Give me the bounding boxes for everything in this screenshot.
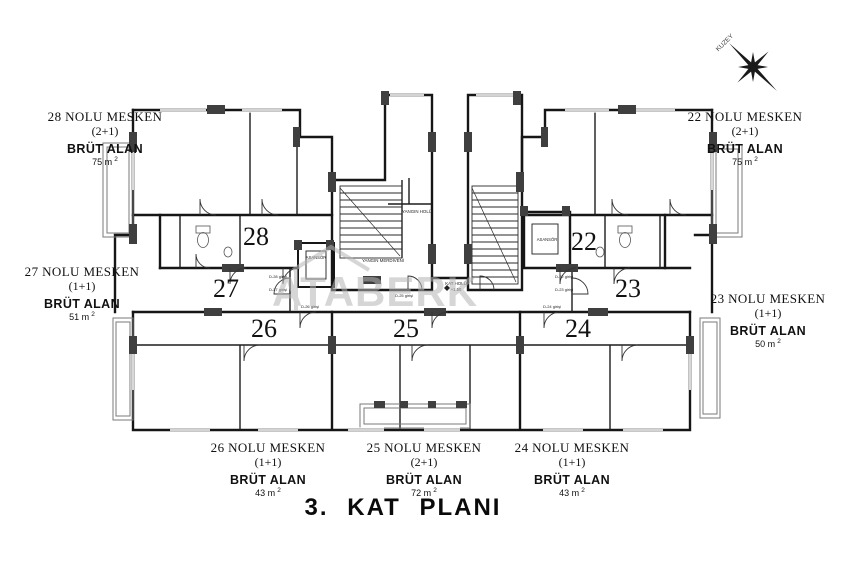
entry-label-24: D-24 girişi xyxy=(543,304,561,309)
windows xyxy=(130,92,714,432)
callout-unit-23: 23 NOLU MESKEN (1+1) BRÜT ALAN 50 m2 xyxy=(711,292,826,349)
plan-number-28: 28 xyxy=(243,222,269,251)
yangin-holu-label: YANGIN HOLÜ xyxy=(402,209,432,214)
unit-area-value: 75 m2 xyxy=(48,156,163,167)
yangin-merdiveni-label: YANGIN MERDİVENİ xyxy=(362,258,404,263)
unit-type: (1+1) xyxy=(25,280,140,294)
plan-number-24: 24 xyxy=(565,314,591,343)
unit-area-title: BRÜT ALAN xyxy=(25,297,140,311)
unit-area-title: BRÜT ALAN xyxy=(711,324,826,338)
unit-area-value: 75 m2 xyxy=(688,156,803,167)
plan-number-26: 26 xyxy=(251,314,277,343)
unit-area-title: BRÜT ALAN xyxy=(48,142,163,156)
floor-plan-page: YANGIN HOLÜ YANGIN MERDİVENİ ASANSÖR ASA… xyxy=(0,0,850,566)
unit-type: (2+1) xyxy=(367,456,482,470)
unit-area-title: BRÜT ALAN xyxy=(211,473,326,487)
unit-area-value: 43 m2 xyxy=(515,487,630,498)
compass-north-label: KUZEY xyxy=(715,32,736,53)
unit-name: 24 NOLU MESKEN xyxy=(515,441,630,456)
plan-number-25: 25 xyxy=(393,314,419,343)
unit-name: 26 NOLU MESKEN xyxy=(211,441,326,456)
unit-name: 27 NOLU MESKEN xyxy=(25,265,140,280)
unit-type: (2+1) xyxy=(48,125,163,139)
page-title: 3. KAT PLANI xyxy=(305,494,502,522)
compass-rose: KUZEY xyxy=(715,32,777,91)
outer-walls xyxy=(115,95,712,430)
callout-unit-26: 26 NOLU MESKEN (1+1) BRÜT ALAN 43 m2 xyxy=(211,441,326,498)
unit-type: (2+1) xyxy=(688,125,803,139)
unit-name: 23 NOLU MESKEN xyxy=(711,292,826,307)
unit-name: 22 NOLU MESKEN xyxy=(688,110,803,125)
plan-number-22: 22 xyxy=(571,227,597,256)
unit-area-value: 50 m2 xyxy=(711,338,826,349)
unit-area-title: BRÜT ALAN xyxy=(688,142,803,156)
callout-unit-24: 24 NOLU MESKEN (1+1) BRÜT ALAN 43 m2 xyxy=(515,441,630,498)
stairs-left xyxy=(340,186,402,258)
stairs-right xyxy=(472,186,518,284)
unit-area-title: BRÜT ALAN xyxy=(515,473,630,487)
unit-type: (1+1) xyxy=(211,456,326,470)
structural-columns xyxy=(129,91,717,408)
unit-name: 28 NOLU MESKEN xyxy=(48,110,163,125)
plan-number-23: 23 xyxy=(615,274,641,303)
unit-type: (1+1) xyxy=(711,307,826,321)
entry-label-22: D-22 girişi xyxy=(555,274,573,279)
unit-type: (1+1) xyxy=(515,456,630,470)
callout-unit-22: 22 NOLU MESKEN (2+1) BRÜT ALAN 75 m2 xyxy=(688,110,803,167)
unit-name: 25 NOLU MESKEN xyxy=(367,441,482,456)
entry-label-23: D-23 girişi xyxy=(555,287,573,292)
callout-unit-25: 25 NOLU MESKEN (2+1) BRÜT ALAN 72 m2 xyxy=(367,441,482,498)
unit-area-value: 51 m2 xyxy=(25,311,140,322)
callout-unit-28: 28 NOLU MESKEN (2+1) BRÜT ALAN 75 m2 xyxy=(48,110,163,167)
watermark-text: ATABERK xyxy=(272,268,478,315)
callout-unit-27: 27 NOLU MESKEN (1+1) BRÜT ALAN 51 m2 xyxy=(25,265,140,322)
asansor-right-label: ASANSÖR xyxy=(537,237,557,242)
plan-number-27: 27 xyxy=(213,274,239,303)
unit-area-title: BRÜT ALAN xyxy=(367,473,482,487)
